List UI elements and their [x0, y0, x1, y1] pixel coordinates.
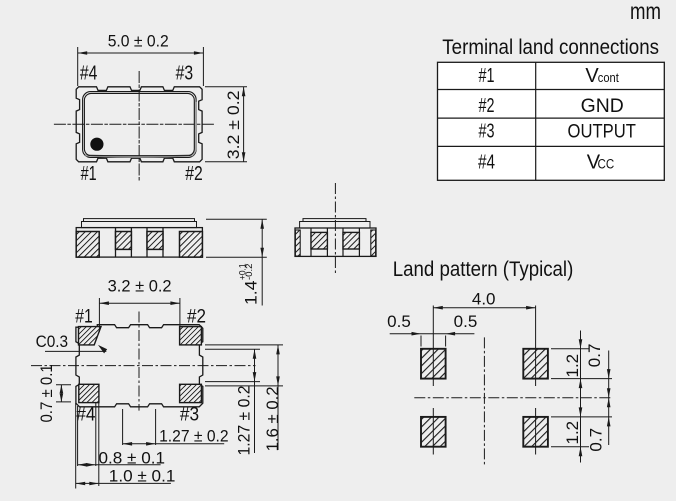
svg-text:#1: #1 — [81, 163, 97, 185]
svg-text:#2: #2 — [187, 307, 206, 328]
svg-text:1.6 ± 0.2: 1.6 ± 0.2 — [263, 386, 282, 451]
svg-text:mm: mm — [630, 0, 661, 24]
svg-text:C0.3: C0.3 — [36, 332, 69, 351]
svg-text:#3: #3 — [479, 121, 495, 143]
svg-text:1.0 ± 0.1: 1.0 ± 0.1 — [109, 466, 176, 485]
svg-text:3.2 ± 0.2: 3.2 ± 0.2 — [108, 277, 172, 296]
svg-text:4.0: 4.0 — [472, 289, 496, 308]
svg-text:0.8 ± 0.1: 0.8 ± 0.1 — [99, 449, 166, 468]
svg-text:1.4: 1.4 — [242, 281, 261, 306]
svg-text:0.5: 0.5 — [387, 312, 411, 331]
svg-text:CC: CC — [598, 157, 615, 172]
svg-text:GND: GND — [581, 95, 624, 117]
svg-text:#4: #4 — [76, 405, 96, 426]
svg-text:5.0 ± 0.2: 5.0 ± 0.2 — [108, 32, 169, 51]
svg-text:Land pattern (Typical): Land pattern (Typical) — [393, 257, 574, 281]
svg-text:-0.2: -0.2 — [244, 263, 254, 280]
svg-text:cont: cont — [598, 70, 619, 85]
svg-text:#3: #3 — [180, 405, 199, 426]
svg-text:3.2 ± 0.2: 3.2 ± 0.2 — [224, 91, 243, 160]
svg-text:#2: #2 — [185, 163, 203, 185]
svg-text:0.7 ± 0.1: 0.7 ± 0.1 — [37, 364, 56, 422]
svg-text:0.7: 0.7 — [587, 428, 606, 452]
svg-text:0.7: 0.7 — [585, 344, 604, 368]
svg-text:OUTPUT: OUTPUT — [568, 121, 636, 143]
svg-text:1.27 ± 0.2: 1.27 ± 0.2 — [235, 386, 254, 456]
svg-text:1.2: 1.2 — [563, 354, 582, 378]
svg-text:#4: #4 — [478, 152, 495, 174]
svg-text:#1: #1 — [75, 307, 93, 328]
svg-text:#3: #3 — [176, 63, 194, 85]
svg-text:1.2: 1.2 — [563, 421, 582, 445]
svg-text:#4: #4 — [80, 63, 98, 85]
svg-text:Terminal land connections: Terminal land connections — [442, 35, 659, 59]
svg-text:1.27 ± 0.2: 1.27 ± 0.2 — [159, 426, 229, 445]
svg-text:#1: #1 — [479, 65, 495, 87]
svg-text:0.5: 0.5 — [454, 312, 478, 331]
svg-text:#2: #2 — [479, 95, 495, 117]
